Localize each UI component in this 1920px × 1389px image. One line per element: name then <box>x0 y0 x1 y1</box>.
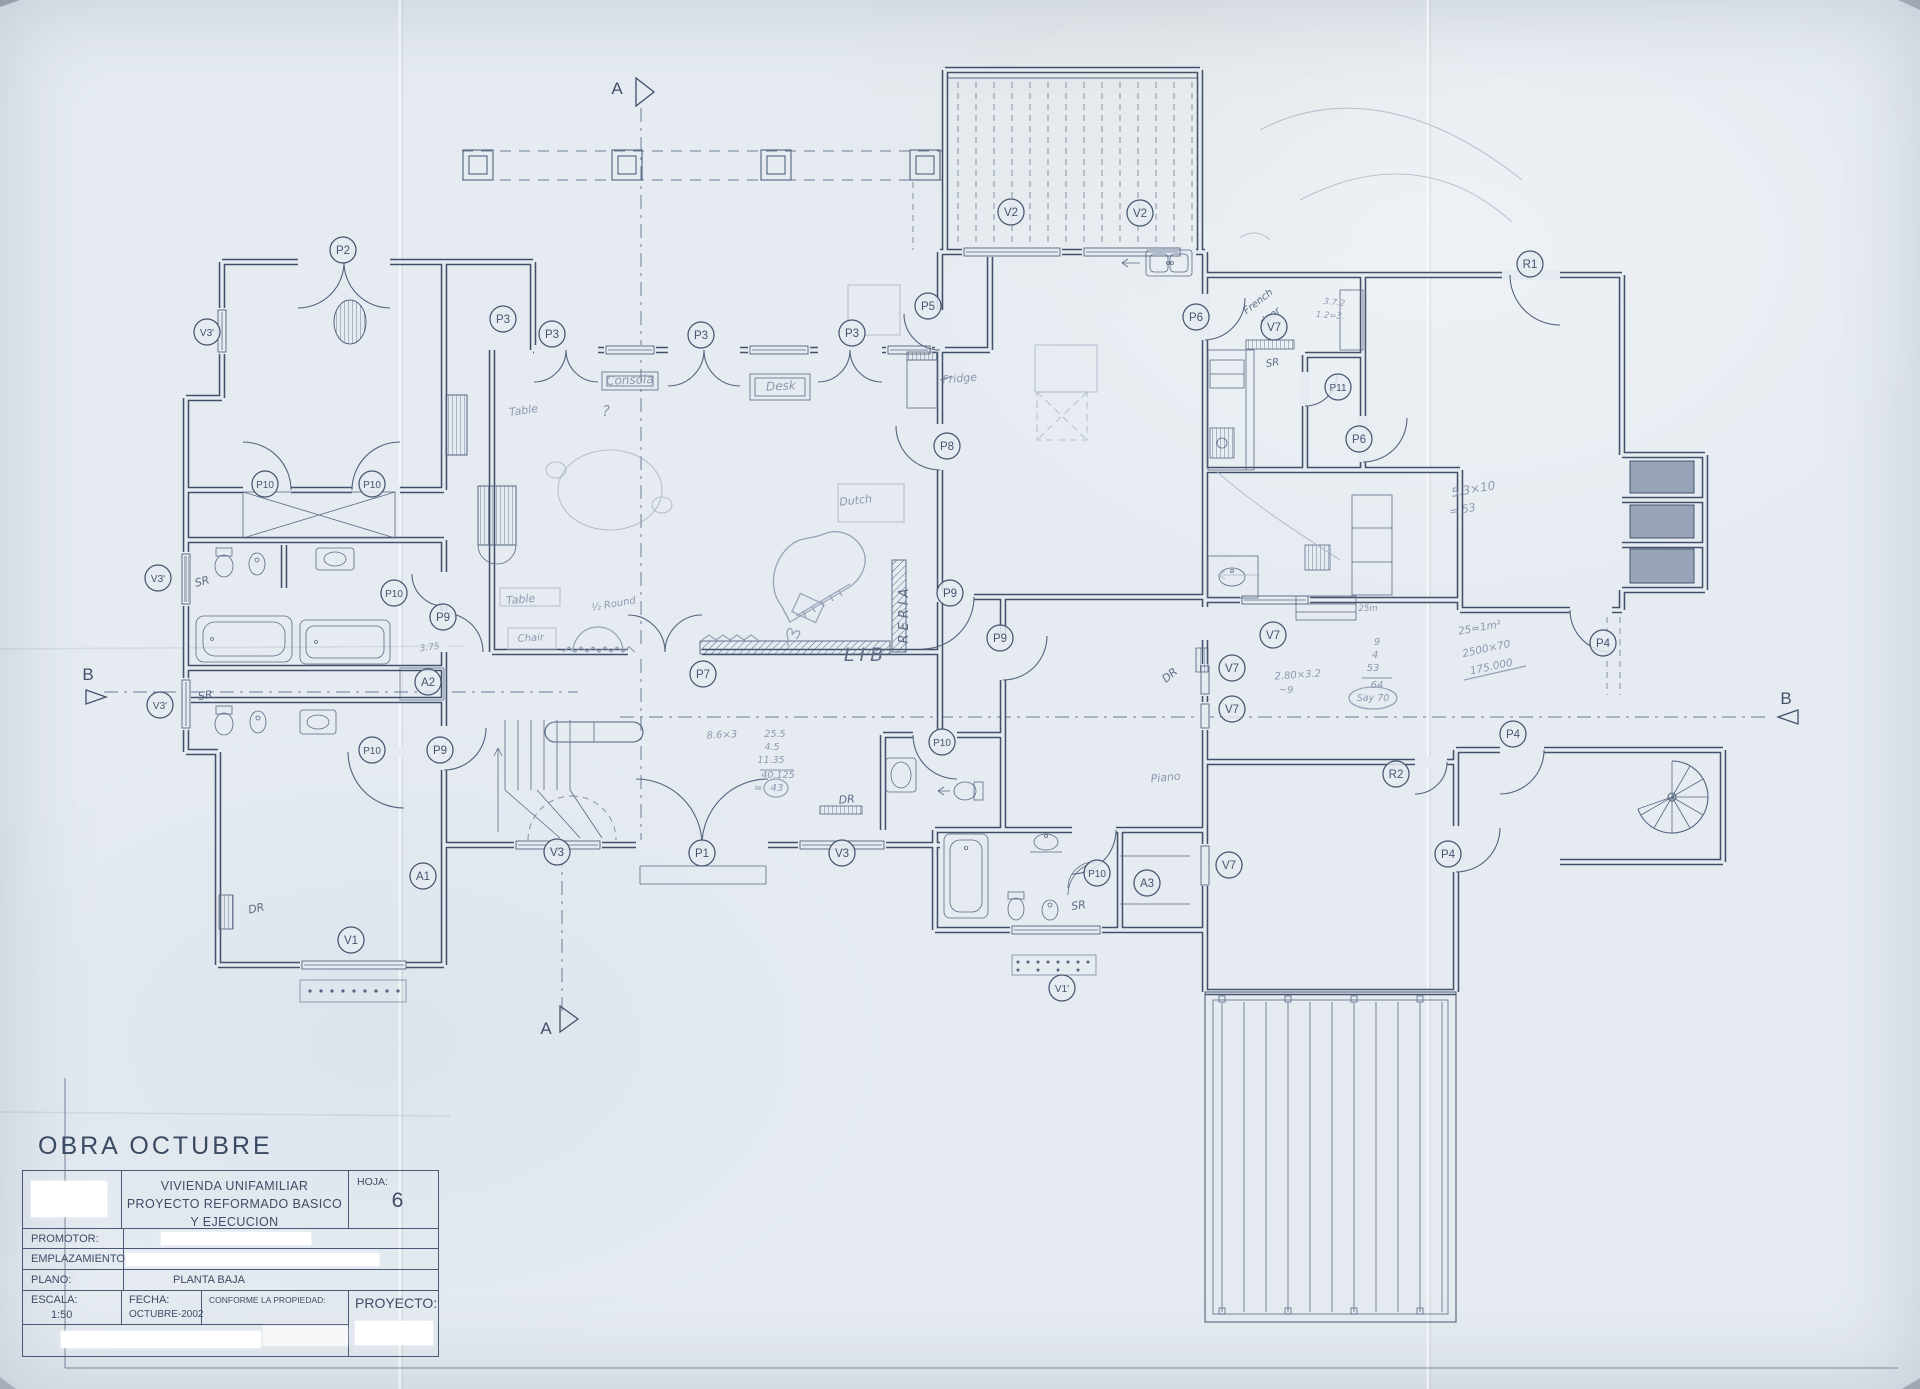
svg-text:P3: P3 <box>845 328 859 340</box>
plan-label-A2: A2 <box>415 669 441 695</box>
plan-label-P9: P9 <box>937 580 963 606</box>
sheet-number: 6 <box>357 1189 438 1213</box>
svg-text:P10: P10 <box>363 746 381 757</box>
svg-text:V3': V3' <box>200 328 214 339</box>
section-marker-B: B <box>82 665 106 704</box>
svg-text:P4: P4 <box>1596 638 1611 650</box>
plan-label-V7: V7 <box>1260 622 1286 648</box>
redacted-emplazamiento <box>126 1253 379 1266</box>
redacted-promotor <box>161 1232 311 1245</box>
plan-label-V7: V7 <box>1216 852 1242 878</box>
promotor-label: PROMOTOR: <box>31 1233 99 1245</box>
plan-label-P6: P6 <box>1183 304 1209 330</box>
svg-text:P3: P3 <box>545 329 559 341</box>
annotation: Dutch <box>839 492 873 508</box>
redacted-bottom <box>61 1331 261 1348</box>
terrace-bottom-right <box>1205 992 1456 1322</box>
plan-label-V3: V3 <box>829 840 855 866</box>
svg-text:B: B <box>1780 689 1791 708</box>
svg-text:P5: P5 <box>921 301 935 313</box>
plan-label-P11: P11 <box>1325 374 1351 400</box>
svg-text:R2: R2 <box>1389 769 1404 781</box>
redacted-proyecto <box>355 1321 433 1345</box>
annotation: ≈ <box>754 783 762 794</box>
annotation: DR <box>1159 665 1180 685</box>
section-marker-A: A <box>611 78 654 106</box>
svg-text:R1: R1 <box>1523 259 1538 271</box>
plan-label-V2: V2 <box>1127 200 1153 226</box>
annotation: Chair <box>517 632 545 644</box>
section-marker-A: A <box>540 1006 578 1038</box>
annotation: ~9 <box>1279 685 1294 696</box>
svg-text:V3: V3 <box>550 847 564 859</box>
annotation: SR <box>1070 898 1086 913</box>
annotation: 3.75 <box>419 642 441 655</box>
svg-text:V7: V7 <box>1222 860 1236 872</box>
plan-label-P9: P9 <box>427 737 453 763</box>
annotation: 64 <box>1371 680 1384 691</box>
plan-label-V7: V7 <box>1219 655 1245 681</box>
plan-label-P4: P4 <box>1435 841 1461 867</box>
annotation: 11.35 <box>757 755 784 766</box>
annotation: Piano <box>1150 769 1182 785</box>
plan-label-V3': V3' <box>145 565 171 591</box>
annotation: 4.5 <box>764 742 779 753</box>
redacted-bottom-2 <box>263 1326 348 1346</box>
emplazamiento-label: EMPLAZAMIENTO: <box>31 1253 128 1265</box>
plan-label-V1: V1 <box>338 927 364 953</box>
svg-text:P10: P10 <box>256 480 274 491</box>
svg-text:P4: P4 <box>1441 849 1456 861</box>
proyecto-label: PROYECTO: <box>355 1295 437 1311</box>
annotation: 8.6×3 <box>706 729 737 742</box>
plan-label-P10: P10 <box>1084 860 1110 886</box>
plan-label-R2: R2 <box>1383 761 1409 787</box>
fecha-value: OCTUBRE-2002 <box>129 1309 203 1320</box>
svg-text:V2: V2 <box>1004 207 1018 219</box>
scanned-floor-plan-sheet: { "document": { "heading": "OBRA OCTUBRE… <box>0 0 1920 1389</box>
svg-text:V1': V1' <box>1055 984 1069 995</box>
sheet-number-label: HOJA: <box>357 1176 388 1188</box>
plan-label-P4: P4 <box>1590 630 1616 656</box>
svg-text:P9: P9 <box>943 588 957 600</box>
annotation: 3.7.2 <box>1323 297 1346 309</box>
annotation: 1.2=3. <box>1315 310 1344 322</box>
svg-text:A: A <box>540 1019 552 1038</box>
annotation: DR <box>247 901 265 917</box>
pergola <box>462 150 944 250</box>
title-block: VIVIENDA UNIFAMILIAR PROYECTO REFORMADO … <box>22 1170 439 1357</box>
svg-text:P10: P10 <box>385 589 403 600</box>
plano-value: PLANTA BAJA <box>173 1274 245 1286</box>
annotation: Say 70 <box>1357 693 1390 704</box>
annotation: = 53 <box>1448 501 1477 518</box>
plan-label-P10: P10 <box>929 729 955 755</box>
plan-label-V1': V1' <box>1049 975 1075 1001</box>
plan-label-V3: V3 <box>544 839 570 865</box>
svg-text:P6: P6 <box>1189 312 1203 324</box>
annotation: 43 <box>771 783 784 794</box>
svg-text:P9: P9 <box>436 612 450 624</box>
annotation: ? <box>602 402 610 420</box>
svg-text:P1: P1 <box>695 848 709 860</box>
annotation: Desk <box>766 378 798 394</box>
plan-label-P10: P10 <box>381 580 407 606</box>
svg-text:P4: P4 <box>1506 729 1521 741</box>
annotation: 2500×70 <box>1461 638 1512 660</box>
svg-text:P3: P3 <box>496 314 510 326</box>
annotation: 53 <box>1367 663 1380 674</box>
plan-label-P3: P3 <box>539 321 565 347</box>
plan-label-P10: P10 <box>359 471 385 497</box>
plan-label-V7: V7 <box>1219 696 1245 722</box>
svg-text:V3: V3 <box>835 848 849 860</box>
plan-label-P1: P1 <box>689 840 715 866</box>
svg-text:P7: P7 <box>696 669 710 681</box>
annotation: Table <box>506 592 536 608</box>
plan-label-A3: A3 <box>1134 870 1160 896</box>
annotation: ½ Round <box>590 594 637 614</box>
svg-text:P10: P10 <box>933 738 951 749</box>
svg-text:P9: P9 <box>433 745 447 757</box>
escala-value: 1:50 <box>51 1309 72 1321</box>
redacted-logo <box>31 1181 107 1217</box>
annotation: Table <box>508 402 539 419</box>
svg-text:A1: A1 <box>416 871 430 883</box>
svg-text:V2: V2 <box>1133 208 1147 220</box>
escala-label: ESCALA: <box>31 1294 77 1306</box>
annotation: 9 <box>1374 637 1380 648</box>
annotation: 25.5 <box>764 729 785 740</box>
annotation: Consola <box>606 372 654 388</box>
plan-label-P9: P9 <box>430 604 456 630</box>
annotation: Fridge <box>942 371 978 387</box>
section-marker-B: B <box>1778 689 1798 724</box>
annotation: 2.80×3.2 <box>1274 668 1321 682</box>
plan-label-P7: P7 <box>690 661 716 687</box>
plan-label-P10: P10 <box>359 737 385 763</box>
spiral-staircase <box>1638 761 1708 833</box>
svg-text:P8: P8 <box>940 441 954 453</box>
svg-text:V3': V3' <box>153 701 167 712</box>
annotation: SR <box>193 573 211 589</box>
svg-text:V7: V7 <box>1225 704 1239 716</box>
plan-label-V2: V2 <box>998 199 1024 225</box>
svg-text:P11: P11 <box>1329 383 1346 394</box>
svg-text:A: A <box>611 79 623 98</box>
svg-text:V7: V7 <box>1225 663 1239 675</box>
svg-text:V1: V1 <box>344 935 358 947</box>
svg-text:A2: A2 <box>421 677 435 689</box>
plan-label-V7: V7 <box>1261 314 1287 340</box>
fecha-label: FECHA: <box>129 1294 169 1306</box>
svg-text:P6: P6 <box>1352 434 1366 446</box>
annotation: SR <box>197 688 214 703</box>
plan-label-P10: P10 <box>252 471 278 497</box>
svg-text:V3': V3' <box>151 574 165 585</box>
sheet-heading: OBRA OCTUBRE <box>38 1132 273 1161</box>
svg-text:B: B <box>82 665 93 684</box>
svg-text:V7: V7 <box>1267 322 1281 334</box>
svg-text:A3: A3 <box>1140 878 1154 890</box>
plan-label-P8: P8 <box>934 433 960 459</box>
annotation: RERIA <box>897 584 912 643</box>
svg-text:P9: P9 <box>993 633 1007 645</box>
svg-text:P10: P10 <box>1088 869 1106 880</box>
plan-label-P3: P3 <box>688 322 714 348</box>
annotation: SR <box>1265 357 1280 370</box>
plan-label-P4: P4 <box>1500 721 1526 747</box>
plan-label-V3': V3' <box>147 692 173 718</box>
svg-text:P10: P10 <box>363 480 381 491</box>
annotation: 25m <box>1358 604 1377 614</box>
svg-text:P2: P2 <box>336 245 350 257</box>
annotation: DR <box>838 792 855 806</box>
plan-label-P3: P3 <box>490 306 516 332</box>
plano-label: PLANO: <box>31 1274 71 1286</box>
annotation: LIB <box>844 644 888 666</box>
plan-label-A1: A1 <box>410 863 436 889</box>
main-staircase <box>494 720 643 840</box>
terrace-top <box>945 70 1200 246</box>
plan-label-P5: P5 <box>915 293 941 319</box>
svg-text:V7: V7 <box>1266 630 1280 642</box>
fixtures <box>182 108 1526 1002</box>
plan-label-V3': V3' <box>194 319 220 345</box>
plan-label-R1: R1 <box>1517 251 1543 277</box>
annotation: 25=1m² <box>1457 618 1502 637</box>
conforme-label: CONFORME LA PROPIEDAD: <box>209 1295 326 1305</box>
plan-label-P6: P6 <box>1346 426 1372 452</box>
plan-label-P9: P9 <box>987 625 1013 651</box>
annotation: 40.125 <box>761 770 794 781</box>
project-title: VIVIENDA UNIFAMILIAR PROYECTO REFORMADO … <box>121 1177 348 1231</box>
plan-label-P3: P3 <box>839 320 865 346</box>
annotation: 4 <box>1372 650 1378 661</box>
plan-label-P2: P2 <box>330 237 356 263</box>
svg-text:P3: P3 <box>694 330 708 342</box>
